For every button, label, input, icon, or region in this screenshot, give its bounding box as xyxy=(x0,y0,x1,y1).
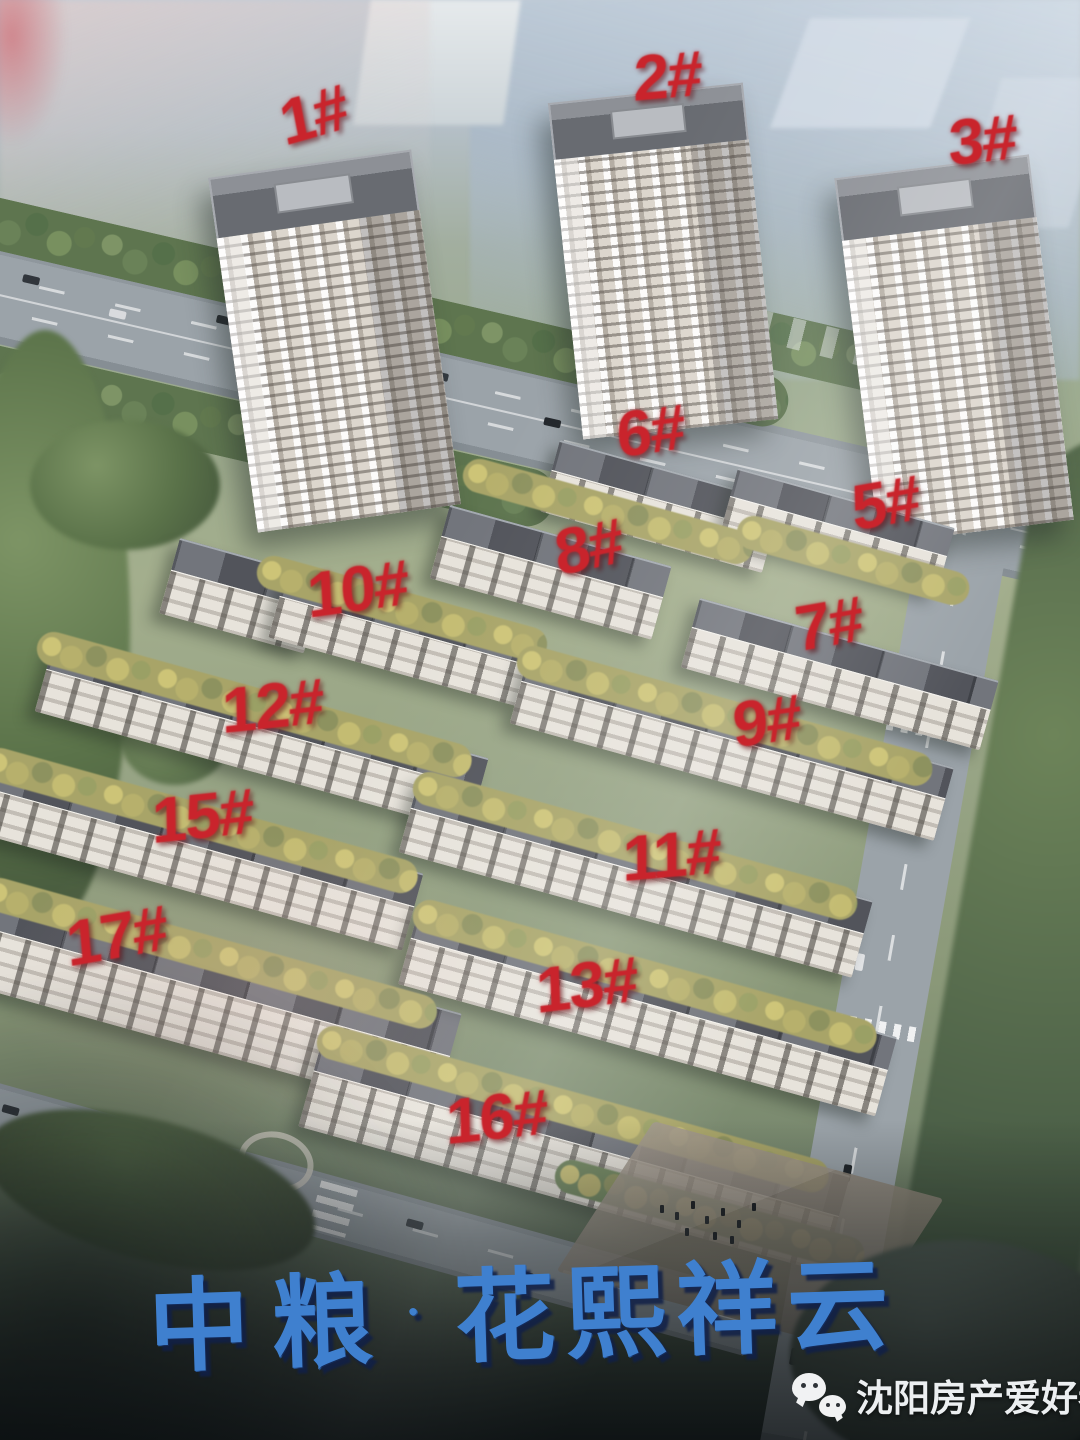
title-part1: 中粮 xyxy=(146,1239,396,1393)
tree-grove xyxy=(30,420,220,550)
tower-2 xyxy=(548,83,778,440)
tower-facade xyxy=(217,210,461,533)
watermark-text: 沈阳房产爱好者 xyxy=(856,1368,1080,1422)
wechat-icon xyxy=(792,1371,846,1419)
aerial-masterplan-rendering: 1#2#3#6#5#8#10#7#12#9#15#11#17#13#16# 中粮… xyxy=(0,0,1080,1440)
chat-bubble-large xyxy=(792,1373,826,1401)
title-separator: · xyxy=(405,1288,420,1335)
tower-facade xyxy=(842,217,1074,544)
red-smear xyxy=(0,0,68,148)
chat-bubble-small xyxy=(819,1395,846,1417)
project-title: 中粮 · 花熙祥云 xyxy=(146,1232,1029,1380)
tower-facade xyxy=(554,140,778,439)
watermark: 沈阳房产爱好者 xyxy=(792,1368,1080,1422)
title-part2: 花熙祥云 xyxy=(452,1223,900,1383)
